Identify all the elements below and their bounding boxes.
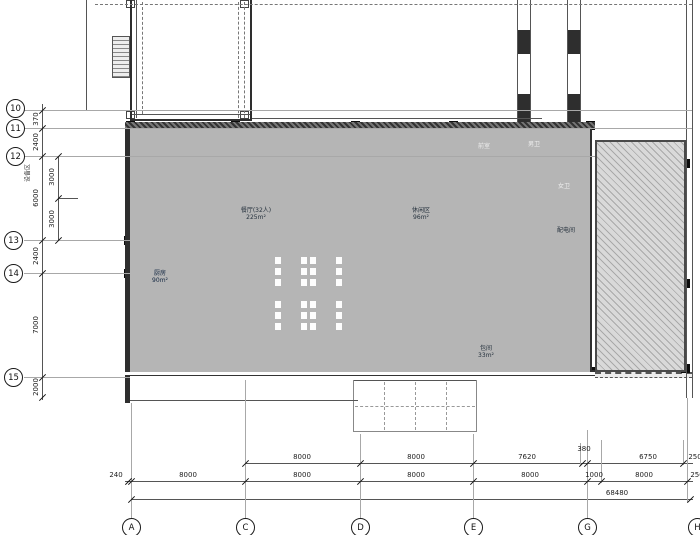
dashv bbox=[142, 2, 143, 114]
dimension-text: 8000 bbox=[635, 471, 653, 479]
thin bbox=[125, 400, 358, 401]
gl bbox=[687, 398, 688, 502]
chairs bbox=[310, 301, 316, 330]
thin bbox=[686, 0, 687, 398]
grid-bubble-D: D bbox=[351, 518, 370, 535]
grid-line-A bbox=[131, 403, 132, 518]
grid-bubble-A: A bbox=[122, 518, 141, 535]
upper-floor-outline bbox=[95, 4, 692, 5]
chairs bbox=[301, 301, 307, 330]
grid-bubble-G: G bbox=[578, 518, 597, 535]
thin bbox=[252, 118, 542, 119]
thin bbox=[517, 0, 518, 122]
chairs bbox=[275, 257, 281, 286]
dimension-text: 1000 bbox=[585, 471, 603, 479]
grid-bubble-E: E bbox=[464, 518, 483, 535]
grid-bubble-15: 15 bbox=[4, 368, 23, 387]
chairs bbox=[336, 301, 342, 330]
dimension-text: 3000 bbox=[48, 210, 56, 228]
dimension-text: 250 bbox=[688, 453, 700, 461]
dimension-text: 8000 bbox=[407, 471, 425, 479]
dining-floor bbox=[130, 128, 590, 372]
dimension-text: 6000 bbox=[32, 189, 40, 207]
dimension-text: 380 bbox=[577, 445, 590, 453]
thin bbox=[130, 114, 252, 115]
dining-label: 餐厅(32人) 225m² bbox=[241, 207, 271, 221]
mens-wc-label: 男卫 bbox=[528, 141, 540, 148]
side-note: 设备区 bbox=[23, 164, 32, 182]
chairs bbox=[310, 257, 316, 286]
thin bbox=[580, 0, 581, 122]
dimension-text: 7000 bbox=[32, 316, 40, 334]
dim-row-2 bbox=[125, 481, 693, 482]
grid-line-E bbox=[473, 434, 474, 518]
wall bbox=[567, 94, 580, 122]
dim-row-total bbox=[131, 499, 693, 500]
chairs bbox=[301, 257, 307, 286]
grid-bubble-13: 13 bbox=[4, 231, 23, 250]
dimension-text: 250 bbox=[690, 471, 700, 479]
dimension-text: 8000 bbox=[293, 471, 311, 479]
wall bbox=[130, 119, 252, 121]
dimension-text: 68480 bbox=[606, 489, 628, 497]
chairs bbox=[336, 257, 342, 286]
grid-line-10 bbox=[24, 110, 692, 111]
dimension-text: 3000 bbox=[48, 168, 56, 186]
thin bbox=[58, 198, 78, 199]
dim-row-1 bbox=[245, 463, 693, 464]
dashv bbox=[238, 2, 239, 118]
grid-bubble-C: C bbox=[236, 518, 255, 535]
dimension-text: 2000 bbox=[32, 378, 40, 396]
kitchen-label: 厨房 90m² bbox=[152, 270, 168, 284]
dimension-text: 2400 bbox=[32, 247, 40, 265]
dimension-text: 8000 bbox=[293, 453, 311, 461]
grid-bubble-10: 10 bbox=[6, 99, 25, 118]
wall bbox=[250, 0, 252, 120]
entrance-porch bbox=[353, 380, 477, 432]
thin bbox=[136, 0, 137, 118]
dimension-text: 8000 bbox=[179, 471, 197, 479]
grid-line-12 bbox=[24, 156, 595, 157]
power-room-label: 配电间 bbox=[557, 227, 575, 234]
thin bbox=[567, 0, 568, 122]
dim-chain-left bbox=[42, 104, 43, 400]
grid-bubble-11: 11 bbox=[6, 119, 25, 138]
vestibule-label: 前室 bbox=[478, 143, 490, 150]
wall bbox=[517, 30, 530, 54]
thin bbox=[692, 0, 693, 398]
lounge-label: 休闲区 96m² bbox=[412, 207, 430, 221]
dimension-text: 6750 bbox=[639, 453, 657, 461]
adjacent-building bbox=[595, 140, 686, 372]
dash2 bbox=[595, 372, 692, 378]
private-room-label: 包间 33m² bbox=[478, 345, 494, 359]
dimension-text: 370 bbox=[32, 112, 40, 125]
wall bbox=[567, 30, 580, 54]
wall bbox=[130, 0, 132, 120]
dimension-text: 240 bbox=[109, 471, 122, 479]
floor-plan: 厨房 90m² 餐厅(32人) 225m² 休闲区 96m² 包间 33m² 配… bbox=[0, 0, 700, 535]
dashv bbox=[244, 2, 245, 118]
grid-line-D bbox=[360, 434, 361, 518]
chairs bbox=[275, 301, 281, 330]
grid-line-C bbox=[245, 380, 246, 518]
grid-bubble-14: 14 bbox=[4, 264, 23, 283]
dimension-text: 7620 bbox=[518, 453, 536, 461]
dimension-text: 2400 bbox=[32, 133, 40, 151]
thin bbox=[86, 0, 87, 110]
grid-line-11 bbox=[24, 128, 692, 129]
thin bbox=[530, 0, 531, 122]
dimension-text: 8000 bbox=[521, 471, 539, 479]
grid-bubble-H: H bbox=[688, 518, 700, 535]
exterior-stair bbox=[112, 36, 130, 78]
womens-wc-label: 女卫 bbox=[558, 183, 570, 190]
dimension-text: 8000 bbox=[407, 453, 425, 461]
